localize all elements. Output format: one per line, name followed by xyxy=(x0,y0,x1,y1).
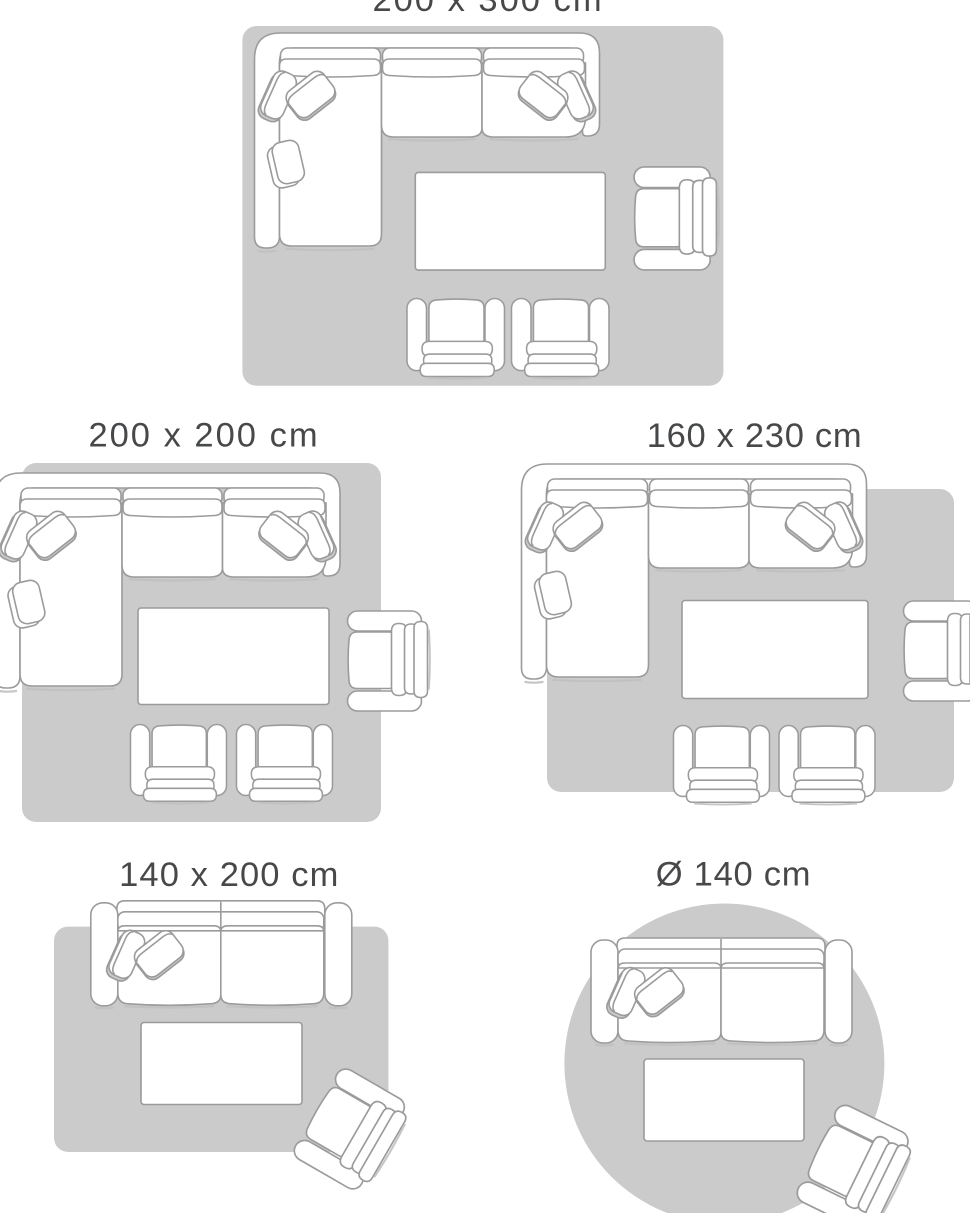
svg-text:Ø 140 cm: Ø 140 cm xyxy=(656,856,812,894)
svg-text:160 x 230 cm: 160 x 230 cm xyxy=(647,417,863,455)
svg-text:140 x 200 cm: 140 x 200 cm xyxy=(119,856,339,894)
svg-text:200 x 200 cm: 200 x 200 cm xyxy=(88,417,319,455)
svg-text:200 x 300 cm: 200 x 300 cm xyxy=(372,0,603,19)
